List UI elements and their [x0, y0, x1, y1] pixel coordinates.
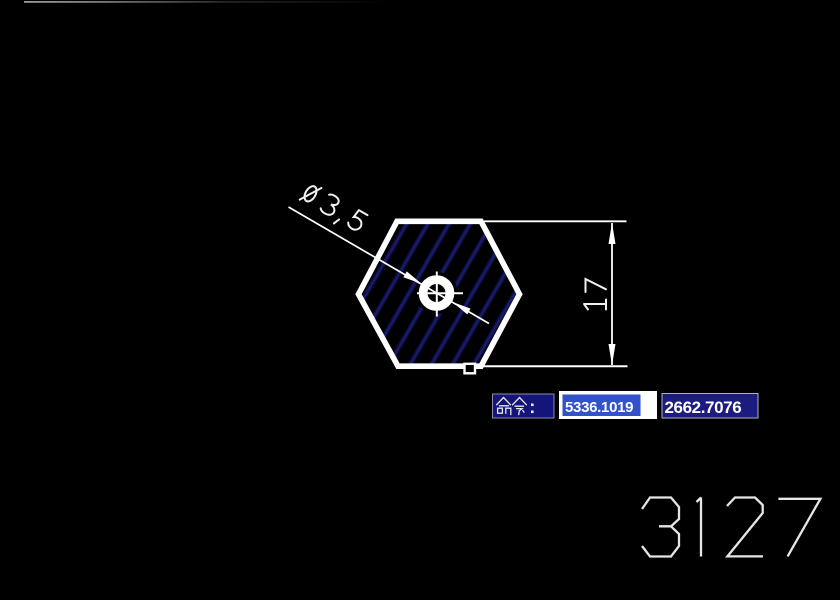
- svg-text:5336.1019: 5336.1019: [565, 399, 633, 416]
- svg-text:2662.7076: 2662.7076: [665, 398, 742, 417]
